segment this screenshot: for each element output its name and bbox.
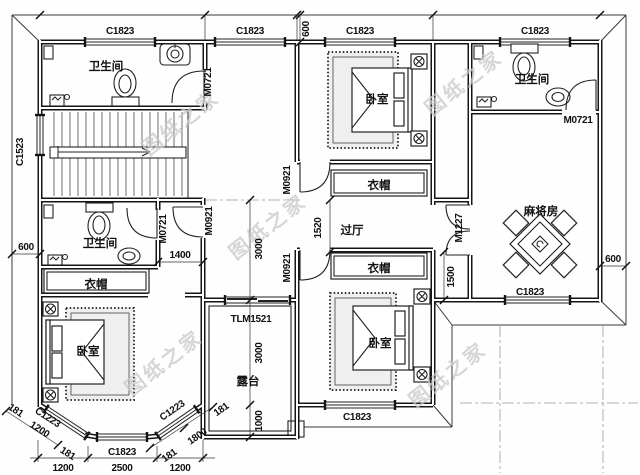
room-label-closet: 衣帽 [85, 277, 108, 291]
dim-label-1200: 1200 [52, 463, 74, 474]
room-label-closet: 衣帽 [368, 178, 391, 192]
dim-label-3000: 3000 [254, 238, 265, 260]
door-m0921-bedroom-top [300, 162, 330, 192]
dim-label-181: 181 [6, 402, 26, 420]
room-label-mahjong: 麻将房 [523, 204, 559, 218]
window-label-c1823: C1823 [516, 287, 545, 298]
window-label-c1823: C1823 [106, 26, 135, 37]
dim-label-3000: 3000 [254, 342, 265, 364]
nightstand-lamp-icon [414, 289, 430, 304]
floor-plan-drawing: 图纸之家 图纸之家 图纸之家 图纸之家 图纸之家 卫生间 卫生间 卫生间 卧室 … [0, 0, 640, 475]
door-label-m0921: M0921 [282, 253, 293, 283]
mahjong-table-icon [503, 210, 576, 277]
dim-label-1500: 1500 [446, 266, 457, 288]
door-m0721-bath-top-right [566, 80, 596, 110]
window-c1823-bedroom-bottom [325, 400, 395, 410]
door-m0921-bedroom-bottom [300, 250, 330, 280]
window-label-c1223: C1223 [158, 398, 188, 423]
door-label-m0721: M0721 [203, 67, 214, 97]
window-c1823-top-2 [215, 37, 285, 47]
door-m0921-vestibule [173, 207, 203, 237]
wall-cabinet-icon [44, 205, 53, 218]
nightstand-lamp-icon [43, 302, 58, 316]
window-c1823-top-1 [85, 37, 155, 47]
toilet-icon [86, 203, 113, 240]
door-label-m0921: M0921 [282, 165, 293, 195]
window-c1523-left [35, 115, 45, 155]
wall-cabinet-icon [44, 46, 53, 59]
dim-label-600: 600 [18, 242, 35, 253]
sink-icon [546, 88, 570, 106]
room-label-bedroom: 卧室 [369, 336, 392, 350]
dim-label-181: 181 [212, 400, 232, 418]
room-label-terrace: 露台 [237, 374, 260, 388]
room-label-bathroom: 卫生间 [515, 72, 550, 86]
washbasin-icon [477, 97, 497, 108]
room-label-closet: 衣帽 [368, 261, 391, 275]
room-label-bathroom: 卫生间 [89, 59, 124, 73]
washbasin-icon [50, 95, 70, 107]
door-label-m0921: M0921 [204, 206, 215, 236]
window-c1823-bay [97, 432, 147, 442]
sliding-door-tlm1521 [225, 295, 290, 305]
dim-label-1800: 1800 [186, 426, 210, 448]
door-label-m0721: M0721 [158, 214, 169, 244]
dim-label-600: 600 [605, 254, 622, 265]
window-c1823-top-3 [325, 37, 395, 47]
dim-label-2500: 2500 [111, 463, 133, 474]
window-label-c1823: C1823 [236, 26, 265, 37]
room-label-bedroom: 卧室 [366, 92, 389, 106]
room-label-bathroom: 卫生间 [83, 236, 118, 250]
roof-axis-lines [205, 200, 638, 473]
dim-label-181: 181 [58, 445, 78, 463]
door-label-m1227: M1227 [454, 213, 465, 243]
door-label-tlm1521: TLM1521 [231, 314, 272, 325]
window-label-c1823: C1823 [343, 412, 372, 423]
door-m0721-bath-mid-left [127, 208, 157, 238]
dim-label-1400: 1400 [169, 250, 191, 261]
window-label-c1823: C1823 [346, 26, 375, 37]
window-label-c1823: C1823 [108, 447, 137, 458]
door-label-m0721: M0721 [563, 115, 593, 126]
dim-label-1000: 1000 [254, 410, 265, 432]
nightstand-lamp-icon [411, 131, 427, 146]
room-label-bedroom: 卧室 [77, 344, 100, 358]
window-label-c1523: C1523 [15, 137, 26, 166]
floor-plan-page: 图纸之家 图纸之家 图纸之家 图纸之家 图纸之家 卫生间 卫生间 卫生间 卧室 … [0, 0, 640, 475]
washbasin-icon [48, 255, 68, 266]
nightstand-lamp-icon [43, 388, 58, 402]
dim-label-600: 600 [301, 20, 312, 37]
sink-icon [118, 248, 140, 264]
dim-label-1200: 1200 [169, 463, 191, 474]
room-label-hallway: 过厅 [341, 223, 364, 237]
nightstand-lamp-icon [411, 54, 427, 69]
bathroom-top-left [44, 44, 190, 106]
dim-label-1520: 1520 [313, 217, 324, 239]
bathroom-mid-left [44, 203, 140, 265]
window-label-c1823: C1823 [521, 26, 550, 37]
sink-icon [160, 44, 190, 65]
toilet-icon [112, 69, 139, 106]
